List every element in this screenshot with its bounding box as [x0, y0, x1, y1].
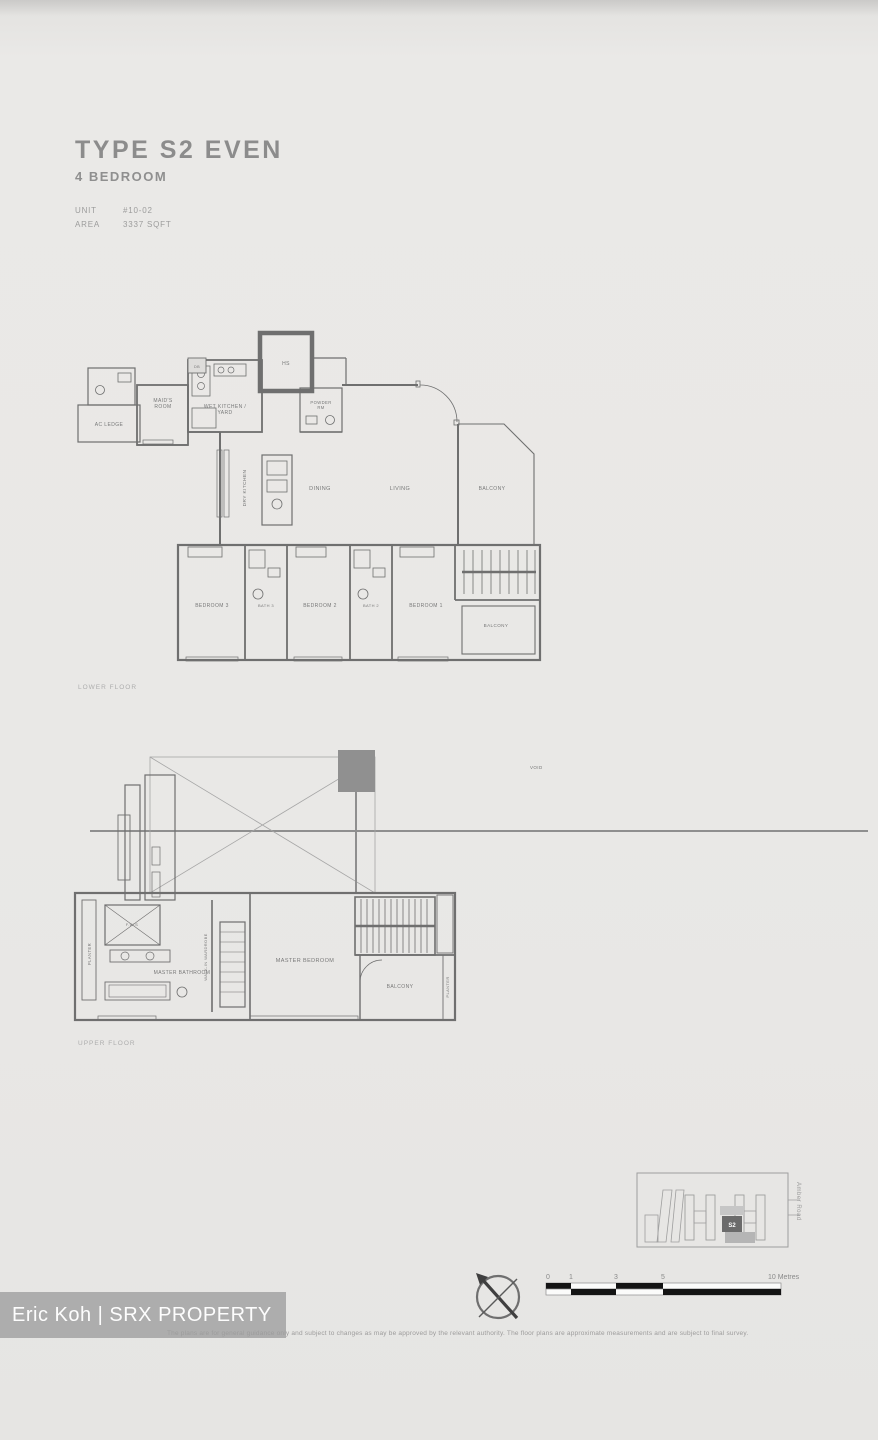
scale-tick-0: 0	[546, 1274, 550, 1281]
scale-end-label: 10 Metres	[768, 1274, 800, 1281]
upper-floor-plan: VOID PLANTER F.W.S MASTER BATHROOM WALK-…	[60, 742, 870, 1054]
room-label-dry-kitchen: DRY KITCHEN	[242, 469, 248, 506]
scale-tick-5: 5	[661, 1274, 665, 1281]
site-plan-podium	[725, 1232, 755, 1243]
room-label-db: DB	[194, 365, 200, 369]
unit-value: #10-02	[123, 206, 153, 215]
room-label-dining: DINING	[309, 486, 331, 492]
room-label-hs: HS	[282, 361, 290, 367]
page-top-shade	[0, 0, 878, 16]
page-subtitle: 4 BEDROOM	[75, 169, 495, 184]
lower-floor-caption: LOWER FLOOR	[78, 684, 137, 691]
room-label-planter-right: PLANTER	[445, 976, 450, 997]
room-label-maids-room: MAID'SROOM	[153, 398, 172, 410]
room-label-bedroom-1: BEDROOM 1	[409, 603, 443, 609]
room-label-balcony-upper: BALCONY	[479, 486, 506, 492]
room-label-master-bathroom: MASTER BATHROOM	[154, 970, 211, 976]
scale-tick-3: 3	[614, 1274, 618, 1281]
unit-info: UNIT #10-02 AREA 3337 SQFT	[75, 206, 495, 229]
room-label-planter-left: PLANTER	[87, 943, 92, 965]
room-label-bath-2: BATH 2	[363, 603, 379, 608]
scale-tick-1: 1	[569, 1274, 573, 1281]
page-title: TYPE S2 EVEN	[75, 136, 495, 165]
lower-floor-plan: AC LEDGE MAID'SROOM DB WET KITCHEN /YARD…	[68, 328, 548, 668]
room-label-living: LIVING	[390, 486, 410, 492]
road-label: Amber Road	[795, 1182, 801, 1252]
north-compass-icon	[468, 1266, 528, 1326]
header-block: TYPE S2 EVEN 4 BEDROOM UNIT #10-02 AREA …	[75, 136, 495, 234]
upper-floor-caption: UPPER FLOOR	[78, 1040, 136, 1047]
site-plan: S2	[632, 1168, 807, 1263]
room-label-balcony: BALCONY	[387, 984, 414, 990]
disclaimer-text: The plans are for general guidance only …	[167, 1330, 873, 1337]
area-value: 3337 SQFT	[123, 220, 172, 229]
room-label-powder-rm: POWDERRM	[310, 400, 331, 410]
void-note: VOID	[530, 765, 543, 770]
room-label-walk-in-wardrobe: WALK-IN WARDROBE	[203, 933, 208, 980]
room-label-balcony-lower: BALCONY	[484, 623, 509, 628]
room-label-bedroom-2: BEDROOM 2	[303, 603, 337, 609]
room-label-bath-3: BATH 3	[258, 603, 274, 608]
room-label-wet-kitchen-yard: WET KITCHEN /YARD	[204, 404, 247, 416]
room-label-bedroom-3: BEDROOM 3	[195, 603, 229, 609]
site-plan-block	[720, 1206, 744, 1215]
room-label-ac-ledge: AC LEDGE	[95, 422, 124, 428]
area-label: AREA	[75, 220, 123, 229]
roof-element	[338, 750, 375, 792]
scale-bar-segments	[546, 1283, 781, 1295]
room-label-master-bedroom: MASTER BEDROOM	[276, 958, 334, 964]
scale-bar: 0 1 3 5 10 Metres	[542, 1270, 832, 1302]
room-label-fws: F.W.S	[126, 922, 138, 927]
unit-marker-label: S2	[728, 1223, 736, 1229]
unit-label: UNIT	[75, 206, 123, 215]
